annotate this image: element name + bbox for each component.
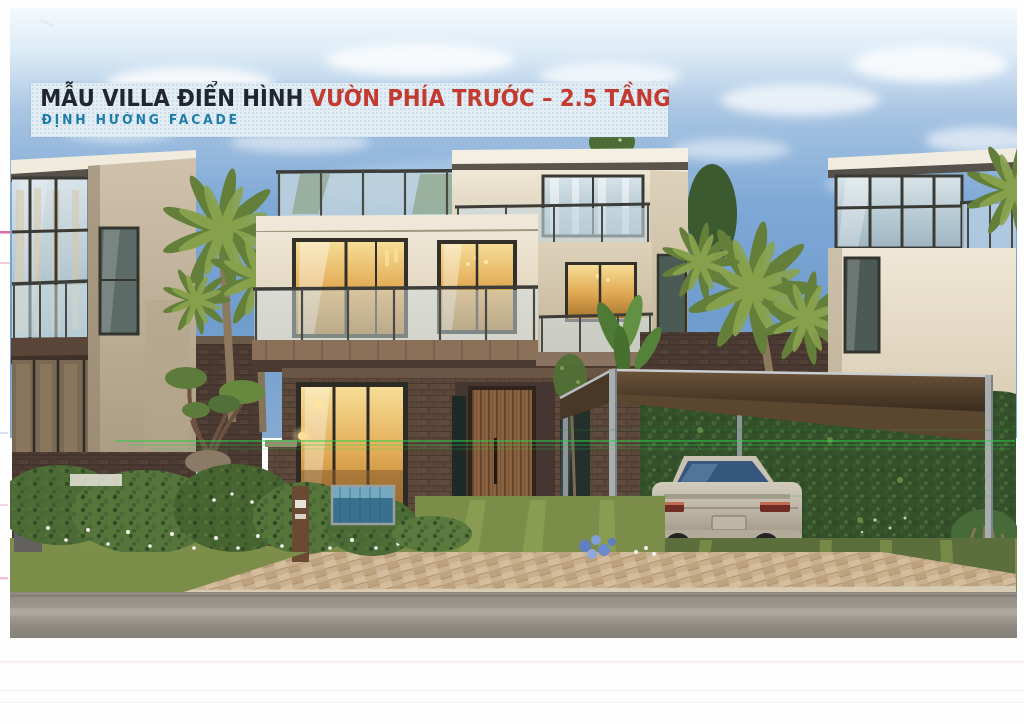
car-license-plate [712,516,746,530]
slide-title: MẪU VILLA ĐIỂN HÌNHVƯỜN PHÍA TRƯỚC – 2.5… [31,83,617,112]
water-feature [332,486,394,524]
address-post [292,486,309,562]
left-villa-balcony-railing [12,281,90,340]
balcony-railing [253,287,539,340]
slide-subtitle: ĐỊNH HƯỚNG FACADE [31,112,636,128]
road [10,592,1017,638]
slide-title-banner: MẪU VILLA ĐIỂN HÌNHVƯỜN PHÍA TRƯỚC – 2.5… [31,83,668,137]
slide-title-black: MẪU VILLA ĐIỂN HÌNH [40,86,303,112]
scanned-slide-page: { "document": { "type": "scanned present… [0,0,1024,724]
left-villa-wing-window [100,228,138,334]
balcony-slab [252,340,540,372]
slide-title-red: VƯỜN PHÍA TRƯỚC – 2.5 TẦNG [310,86,671,112]
right-villa-window [845,258,879,352]
